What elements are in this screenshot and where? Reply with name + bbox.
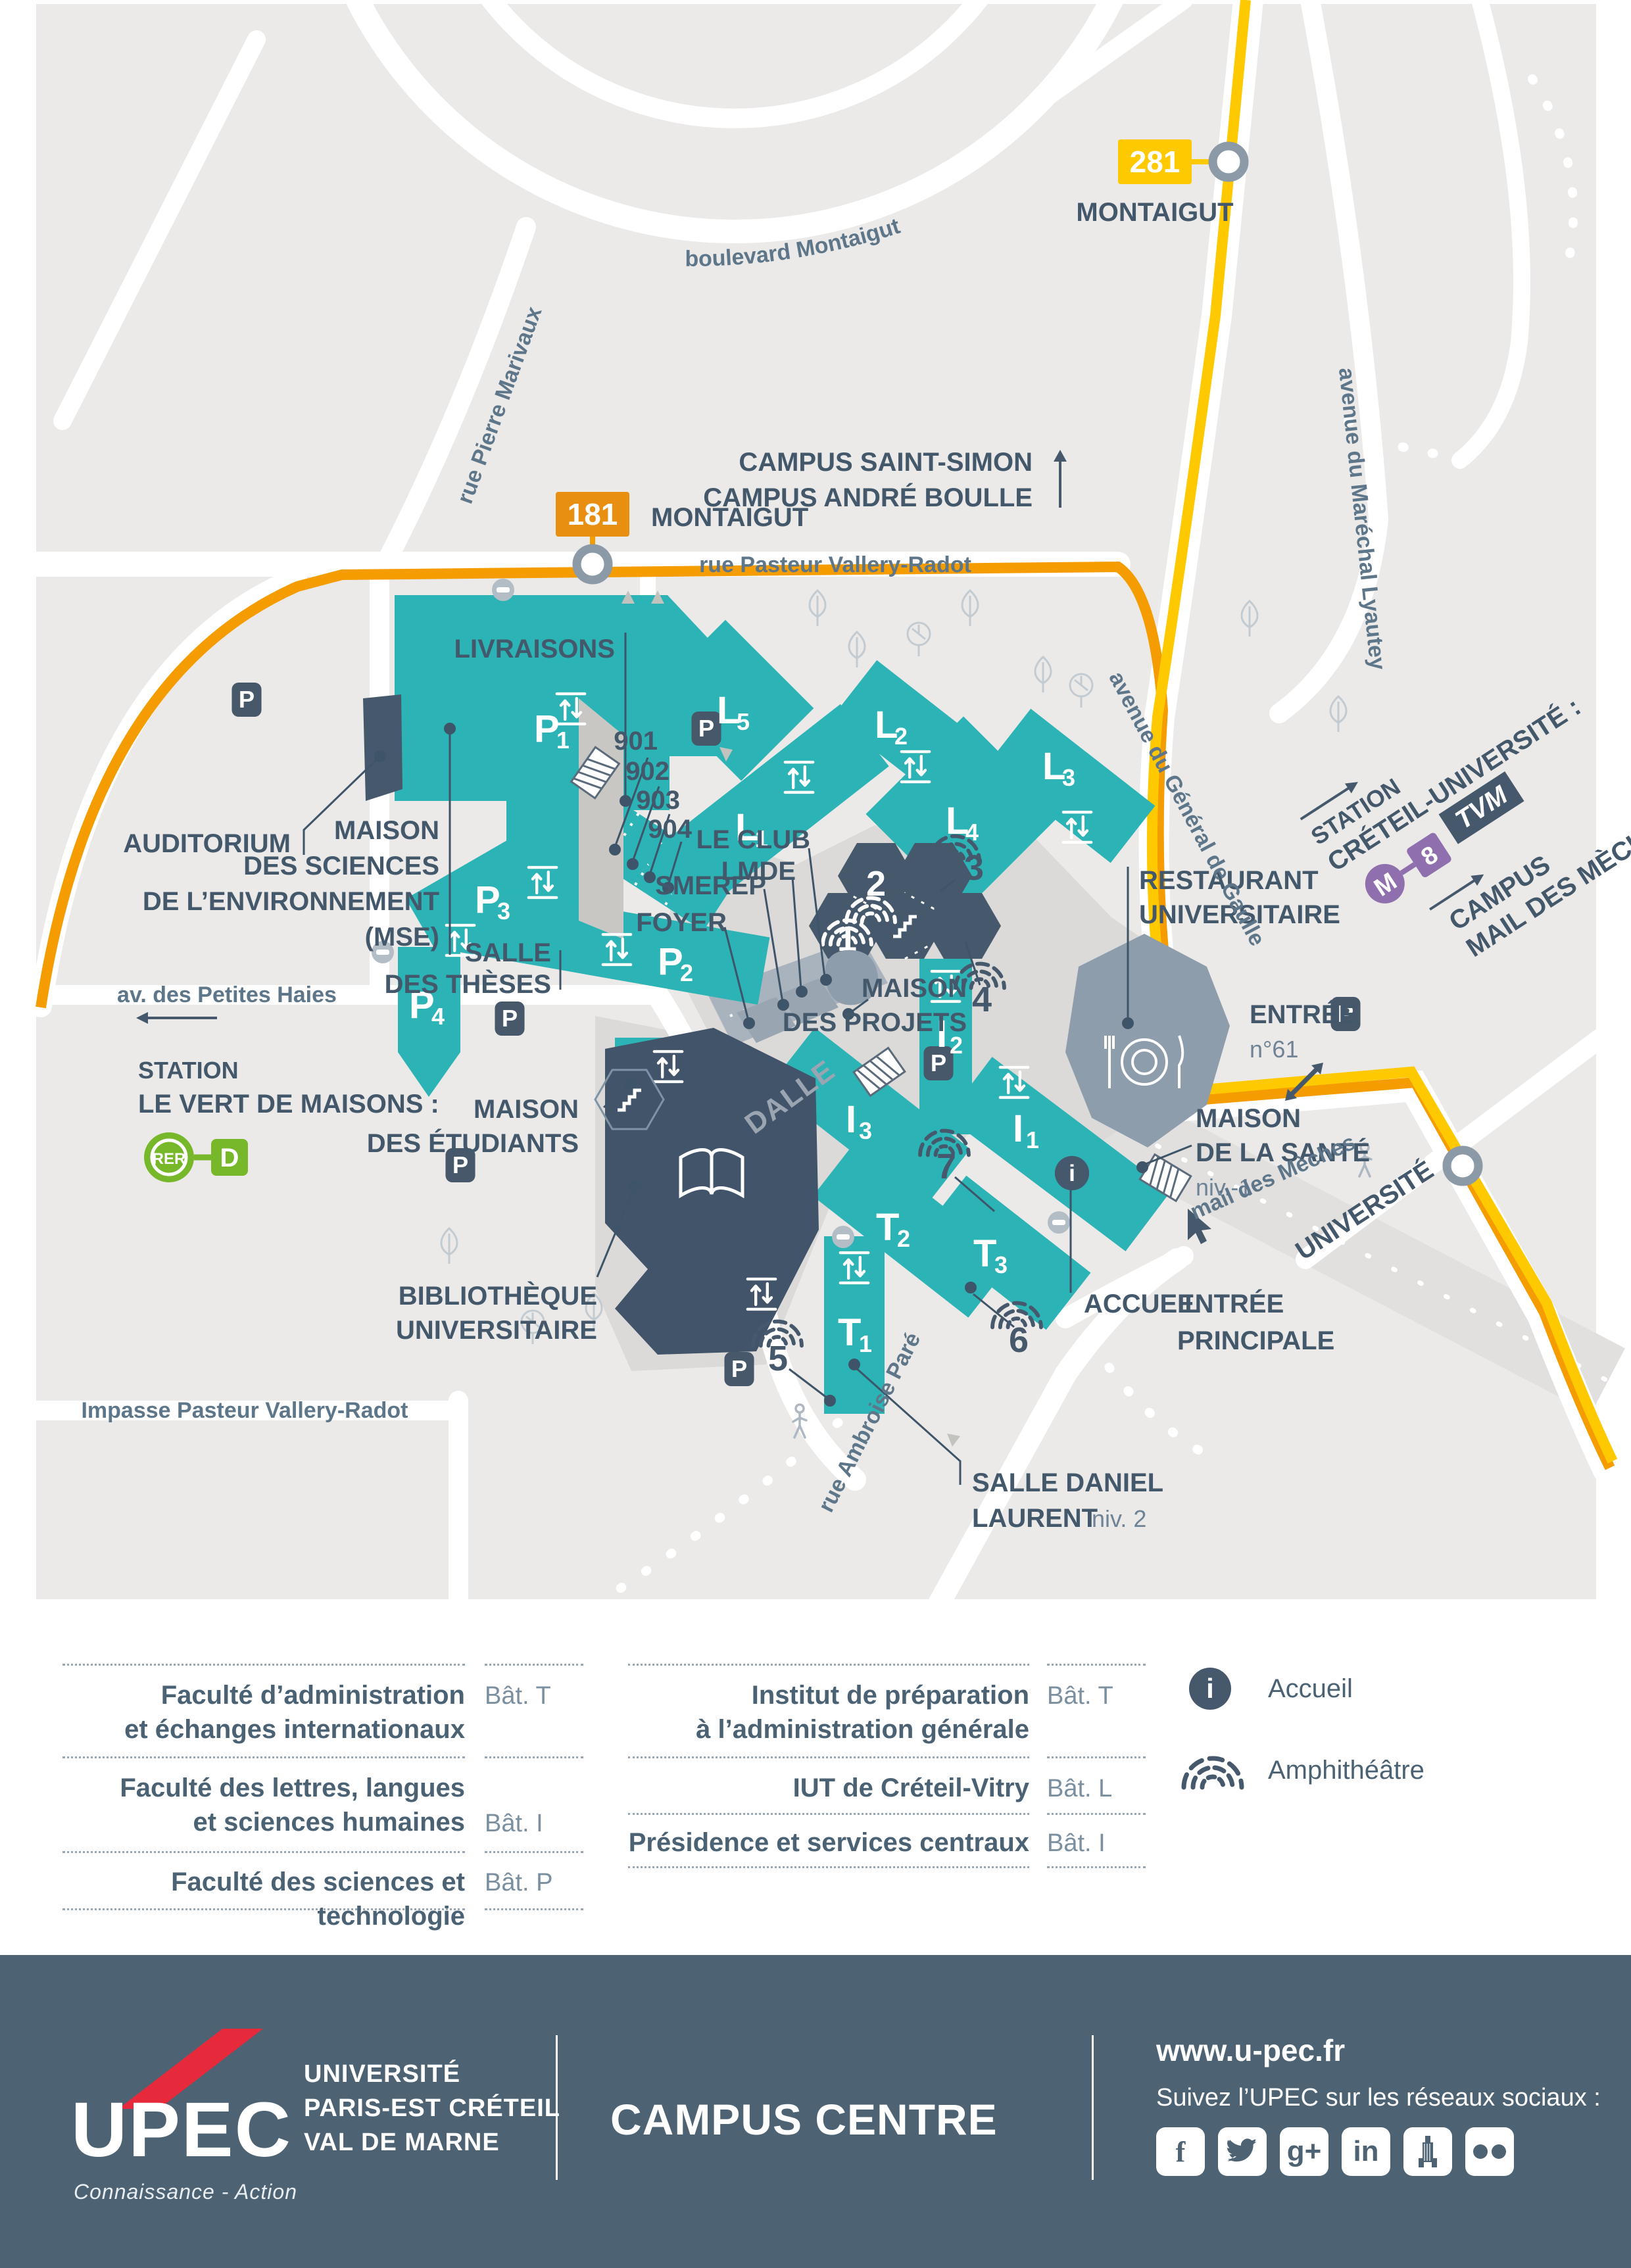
bu-l2: UNIVERSITAIRE xyxy=(396,1316,597,1345)
label-p3: P xyxy=(475,879,500,921)
legend-bat-t2: Bât. T xyxy=(1047,1682,1113,1710)
upec-tagline: Connaissance - Action xyxy=(74,2180,297,2204)
fac-sciences-l1: Faculté des sciences et technologie xyxy=(62,1865,465,1933)
legend-row-institut: Institut de préparation à l’administrati… xyxy=(628,1678,1029,1747)
club-l1: LE CLUB xyxy=(696,825,810,854)
facebook-glyph: f xyxy=(1176,2135,1186,2169)
fac-admin-l1: Faculté d’administration xyxy=(62,1678,465,1712)
vert-l2: LE VERT DE MAISONS : xyxy=(138,1090,439,1119)
legend-bat-i2: Bât. I xyxy=(1047,1829,1106,1858)
label-p2: P xyxy=(658,940,683,983)
sante-l1: MAISON xyxy=(1196,1104,1301,1133)
label-livraisons: LIVRAISONS xyxy=(454,635,615,664)
legend-bat-t1: Bât. T xyxy=(485,1682,551,1710)
badge-181: 181 xyxy=(568,497,618,531)
principale-l2: PRINCIPALE xyxy=(1177,1326,1334,1355)
daniel-l2b: niv. 2 xyxy=(1092,1505,1146,1532)
stop-281-name: MONTAIGUT xyxy=(1076,198,1233,227)
rer-d-label: D xyxy=(220,1144,239,1172)
legend-amphitheatre: Amphithéâtre xyxy=(1268,1756,1424,1785)
label-i3-num: 3 xyxy=(859,1117,872,1144)
campus-title: CAMPUS CENTRE xyxy=(610,2094,998,2144)
footer-divider xyxy=(1092,2035,1094,2180)
label-l2-num: 2 xyxy=(894,723,908,750)
legend-accueil: Accueil xyxy=(1268,1674,1353,1704)
footer: UPEC Connaissance - Action UNIVERSITÉ PA… xyxy=(0,1955,1631,2268)
entree61-l2: n°61 xyxy=(1250,1036,1298,1063)
street-pvr: rue Pasteur Vallery-Radot xyxy=(699,552,971,577)
mse-l3: DE L’ENVIRONNEMENT xyxy=(143,887,439,916)
info-icon xyxy=(1055,1156,1089,1190)
no-entry-icon xyxy=(1048,1211,1070,1234)
daniel-l1: SALLE DANIEL xyxy=(972,1468,1163,1497)
fac-lettres-l1: Faculté des lettres, langues xyxy=(62,1771,465,1805)
legend: Faculté d’administration et échanges int… xyxy=(0,1631,1631,1955)
street-haies: av. des Petites Haies xyxy=(117,982,337,1007)
north-l1: CAMPUS SAINT-SIMON xyxy=(739,448,1033,477)
label-l3-num: 3 xyxy=(1062,764,1075,791)
label-foyer: FOYER xyxy=(636,908,727,937)
label-t2: T xyxy=(876,1206,899,1249)
label-smerep: SMEREP xyxy=(655,871,766,900)
legend-bat-i1: Bât. I xyxy=(485,1810,543,1838)
mse-l1: MAISON xyxy=(334,816,439,845)
label-p3-num: 3 xyxy=(497,898,510,925)
label-l5-num: 5 xyxy=(737,708,750,735)
badge-281: 281 xyxy=(1130,145,1181,179)
principale-l1: ENTRÉE xyxy=(1177,1289,1284,1318)
label-i3: I xyxy=(846,1098,856,1141)
theses-l2: DES THÈSES xyxy=(385,969,551,999)
website-url: www.u-pec.fr xyxy=(1156,2033,1345,2068)
label-t1: T xyxy=(838,1311,861,1354)
uni-name-l2: PARIS-EST CRÉTEIL xyxy=(304,2094,560,2123)
iut-l1: IUT de Créteil-Vitry xyxy=(628,1771,1029,1805)
daniel-l2: LAURENT xyxy=(972,1504,1098,1533)
uni-name-l1: UNIVERSITÉ xyxy=(304,2060,460,2088)
legend-row-iut: IUT de Créteil-Vitry xyxy=(628,1771,1029,1805)
room-902: 902 xyxy=(625,757,669,786)
amphi-3-number: 3 xyxy=(964,848,984,888)
building-auditorium xyxy=(363,694,402,801)
street-impasse: Impasse Pasteur Vallery-Radot xyxy=(81,1398,408,1423)
linkedin-glyph: in xyxy=(1353,2135,1378,2168)
legend-bat-l: Bât. L xyxy=(1047,1775,1112,1803)
fac-admin-l2: et échanges internationaux xyxy=(62,1712,465,1747)
stop-ring-universite xyxy=(1447,1150,1478,1182)
room-901: 901 xyxy=(614,727,658,756)
label-i1: I xyxy=(1013,1107,1023,1150)
bu-l1: BIBLIOTHÈQUE xyxy=(399,1281,597,1311)
mse-l2: DES SCIENCES xyxy=(243,852,439,881)
label-p2-num: 2 xyxy=(680,959,693,986)
googleplus-glyph: g+ xyxy=(1287,2135,1322,2168)
twitter-icon xyxy=(1218,2127,1267,2176)
room-904: 904 xyxy=(648,815,692,844)
legend-row-presidence: Présidence et services centraux xyxy=(628,1825,1029,1860)
stop-181-name: MONTAIGUT xyxy=(651,503,808,532)
rer-label: RER xyxy=(153,1150,186,1168)
googleplus-icon: g+ xyxy=(1280,2127,1328,2176)
facebook-icon: f xyxy=(1156,2127,1205,2176)
stop-ring xyxy=(1213,146,1244,178)
dailymotion-icon xyxy=(1403,2127,1452,2176)
mde-l1: MAISON xyxy=(474,1095,579,1124)
amphi-5-number: 5 xyxy=(768,1339,788,1378)
flickr-icon xyxy=(1465,2127,1514,2176)
amphi-7-number: 7 xyxy=(937,1147,956,1186)
legend-row-fac-admin: Faculté d’administration et échanges int… xyxy=(62,1678,465,1747)
label-i1-num: 1 xyxy=(1026,1126,1039,1153)
label-t2-num: 2 xyxy=(897,1225,910,1252)
label-p1-num: 1 xyxy=(556,727,570,754)
social-caption: Suivez l’UPEC sur les réseaux sociaux : xyxy=(1156,2084,1601,2112)
room-903: 903 xyxy=(636,786,680,815)
label-p1: P xyxy=(534,708,560,750)
mse-l4: (MSE) xyxy=(365,923,439,952)
fac-lettres-l2: et sciences humaines xyxy=(62,1805,465,1839)
no-entry-icon xyxy=(832,1226,854,1248)
amphi-4-number: 4 xyxy=(972,980,992,1019)
legend-row-fac-lettres: Faculté des lettres, langues et sciences… xyxy=(62,1771,465,1839)
linkedin-icon: in xyxy=(1342,2127,1390,2176)
institut-l1: Institut de préparation xyxy=(628,1678,1029,1712)
amphi-2-number: 2 xyxy=(866,864,886,904)
no-entry-icon xyxy=(492,579,514,601)
label-t3: T xyxy=(973,1232,996,1275)
institut-l2: à l’administration générale xyxy=(628,1712,1029,1747)
legend-bat-p: Bât. P xyxy=(485,1869,553,1897)
label-t3-num: 3 xyxy=(994,1251,1008,1278)
label-t1-num: 1 xyxy=(859,1330,872,1357)
uni-name-l3: VAL DE MARNE xyxy=(304,2129,500,2157)
presidence-l1: Présidence et services centraux xyxy=(628,1825,1029,1860)
stop-ring xyxy=(577,548,608,580)
projets-l1: MAISON xyxy=(862,974,967,1003)
entree61-l1: ENTRÉE xyxy=(1250,1000,1356,1029)
upec-logo: UPEC xyxy=(71,2085,292,2175)
info-icon: i xyxy=(1189,1668,1231,1710)
amphi-6-number: 6 xyxy=(1009,1320,1029,1360)
campus-map: P i xyxy=(0,0,1631,1631)
vert-l1: STATION xyxy=(138,1057,239,1084)
projets-l2: DES PROJETS xyxy=(783,1008,967,1037)
mde-l2: DES ÉTUDIANTS xyxy=(367,1128,579,1158)
amphitheatre-icon xyxy=(1180,1753,1246,1793)
theses-l1: SALLE xyxy=(465,938,551,967)
legend-row-fac-sciences: Faculté des sciences et technologie xyxy=(62,1865,465,1933)
label-p4-num: 4 xyxy=(431,1003,445,1030)
